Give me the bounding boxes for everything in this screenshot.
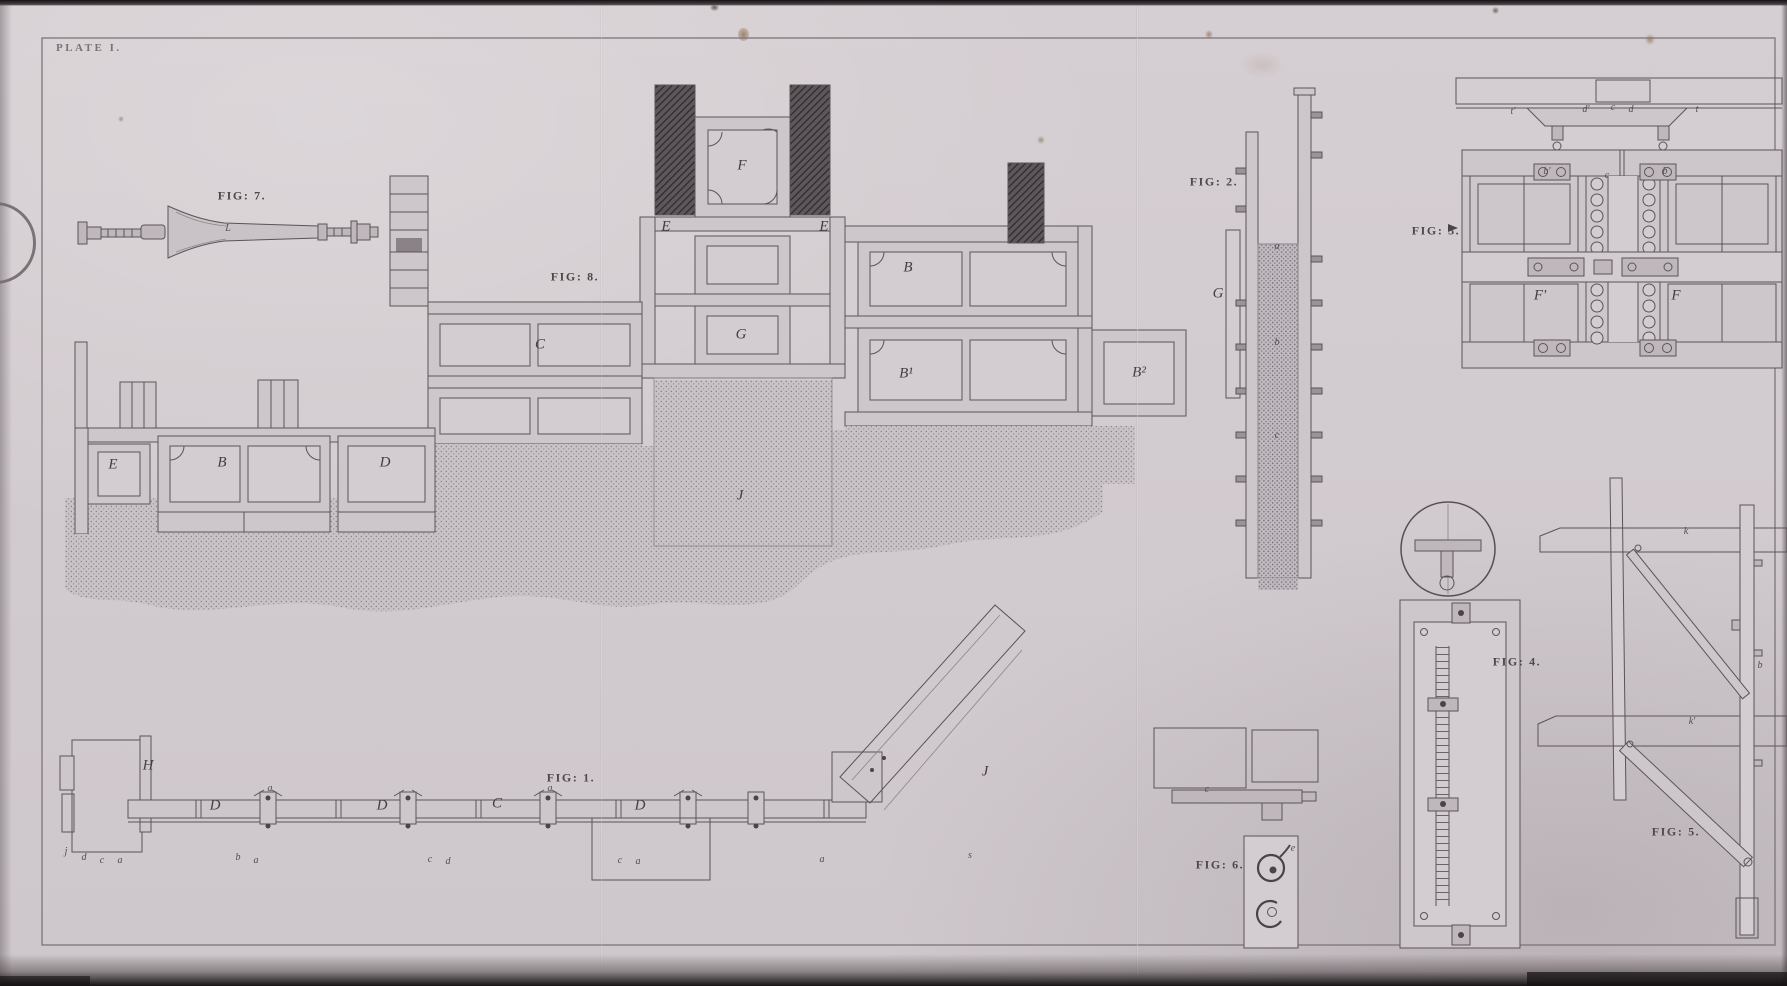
fig6-label: FIG: 6. [1196,858,1245,873]
fig4-ratchet-strip [1436,646,1449,906]
fig6-timber-right [1252,730,1318,782]
fig1-letter-D1: D [210,799,221,814]
fig8-dark-post-left [655,85,695,215]
fig3-letter-F2: F [1671,289,1680,304]
fig8-ladder-strip [390,176,428,306]
fig3-bracket [1527,108,1687,126]
fig2-right-post [1298,94,1311,578]
fig1-tick: b [236,853,241,863]
fig2-left-post [1246,132,1258,578]
fig8-dark-post-right [790,85,830,215]
fig3-letter-t1: t' [1511,107,1516,117]
fig1-tick: a [118,856,123,866]
fig8-letter-B-wing: B [217,456,226,471]
fig1-tick: c [100,856,104,866]
fig8-letter-E-left: E [661,220,670,235]
fig1-tick: s [968,851,972,861]
scan-edge-top [0,0,1787,6]
fig8-letter-D-wing: D [380,456,391,471]
fig1-left-pier [72,740,142,852]
fig4-tbolt-drawing [1400,502,1520,948]
fig1-tick: c [618,856,622,866]
fig7-letter-L: L [225,224,231,234]
fig5-letter-k: k [1684,527,1688,537]
fig2-letter-c: c [1275,431,1279,441]
fig2-plank-G [1226,230,1240,398]
fig8-letter-B2: B² [1132,366,1146,381]
fig8-letter-E-wing: E [108,458,117,473]
fig5-brace-drawing [1538,478,1787,938]
fig1-tick: a [268,784,273,794]
fig1-tick: c [428,855,432,865]
fig8-letter-B1: B¹ [899,367,913,382]
fig5-diagonal-2 [1620,741,1753,866]
scanned-engineering-plate: PLATE I. FIG: 1. FIG: 2. FIG: 3. FIG: 4.… [0,0,1787,986]
fig8-crib-plan-drawing [65,85,1186,611]
fig5-letter-b: b [1758,661,1763,671]
fig1-letter-D2: D [377,799,388,814]
fig3-label: FIG: 3. [1412,224,1461,239]
fig1-letter-J: J [982,765,989,780]
scan-edge-left [0,0,12,986]
fig1-letter-D3: D [635,799,646,814]
fig5-diagonal-1 [1627,549,1750,699]
fig1-tick: d [82,853,87,863]
fig3-letter-c2: c [1605,171,1609,181]
fig1-wale-elevation-drawing [60,605,1025,880]
fig2-letter-a: a [1275,242,1280,252]
fig1-tick: a [636,857,641,867]
fig3-letter-d2: d [1629,105,1634,115]
plate-title: PLATE I. [56,42,122,54]
fig1-center-pier [592,818,710,880]
fig3-letter-d1: d' [1582,105,1589,115]
fig5-label: FIG: 5. [1652,825,1701,840]
fig6-fitting-drawing [1154,728,1318,948]
fig1-tick: d [446,857,451,867]
fig3-letter-c1: c [1611,103,1615,113]
fig5-post [1740,505,1754,935]
fig8-letter-B: B [903,261,912,276]
fig3-letter-t2: t [1696,105,1699,115]
fig6-letter-c: c [1205,785,1209,795]
fig8-letter-G: G [736,328,747,343]
fig1-tick: a [254,856,259,866]
fig4-label: FIG: 4. [1493,655,1542,670]
fold-crease [1136,0,1139,986]
fig1-tick: j [65,847,68,857]
fig1-label: FIG: 1. [547,771,596,786]
scan-edge-right [1781,0,1787,986]
fig5-letter-k2: k' [1689,717,1696,727]
fig1-letter-H: H [143,759,154,774]
plate-drawing [0,0,1787,986]
fig8-letter-E-right: E [819,220,828,235]
fig2-letter-b: b [1275,338,1280,348]
fig2-bolt-stubs-left [1236,168,1246,526]
scan-edge-bottom [0,954,1787,986]
fig6-letter-e: e [1291,844,1295,854]
fig8-dark-post-wing [1008,163,1044,243]
fig3-joint-plan-drawing [1448,78,1782,368]
fig3-letter-b1: b' [1543,167,1550,177]
fig1-letter-C: C [492,797,502,812]
fig8-letter-C: C [535,338,545,353]
fig7-tapered-body [168,206,318,258]
fig2-label: FIG: 2. [1190,175,1239,190]
fig1-tick: a [820,855,825,865]
fold-crease [600,0,603,986]
fig6-timber-left [1154,728,1246,788]
fig2-bolt-stubs-right [1311,112,1322,526]
scan-corner-dark [1527,972,1787,986]
fig3-letter-F1: F' [1534,289,1546,304]
fig2-letter-G: G [1213,287,1224,302]
fig3-letter-b2: b [1663,167,1668,177]
fig8-label: FIG: 8. [551,270,600,285]
fig1-tick: a [548,784,553,794]
scan-corner-dark [0,976,90,986]
fig8-letter-F: F [737,159,746,174]
fig7-label: FIG: 7. [218,189,267,204]
fig8-letter-J: J [737,489,744,504]
fig2-stipple-wall [1258,244,1298,578]
